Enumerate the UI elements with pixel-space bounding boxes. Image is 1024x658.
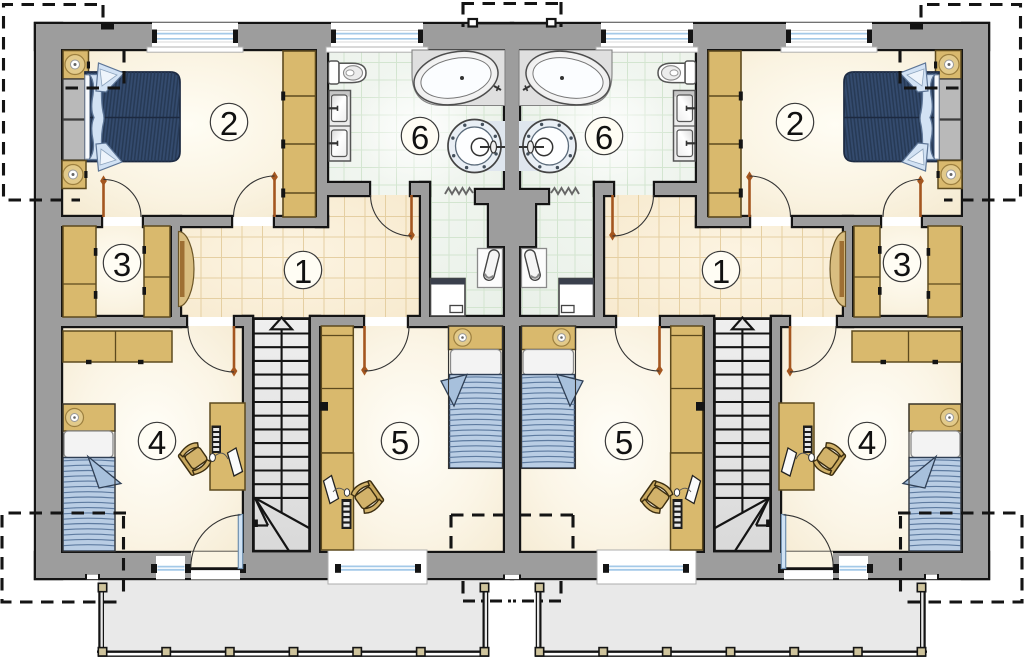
- svg-text:2: 2: [220, 105, 238, 142]
- svg-text:3: 3: [113, 246, 131, 283]
- svg-text:4: 4: [148, 424, 166, 461]
- svg-text:1: 1: [294, 253, 312, 290]
- svg-text:6: 6: [595, 119, 613, 156]
- svg-text:2: 2: [786, 105, 804, 142]
- svg-text:3: 3: [893, 246, 911, 283]
- svg-text:1: 1: [712, 253, 730, 290]
- svg-text:4: 4: [858, 424, 876, 461]
- svg-text:5: 5: [615, 424, 633, 461]
- svg-text:6: 6: [411, 119, 429, 156]
- svg-text:5: 5: [391, 424, 409, 461]
